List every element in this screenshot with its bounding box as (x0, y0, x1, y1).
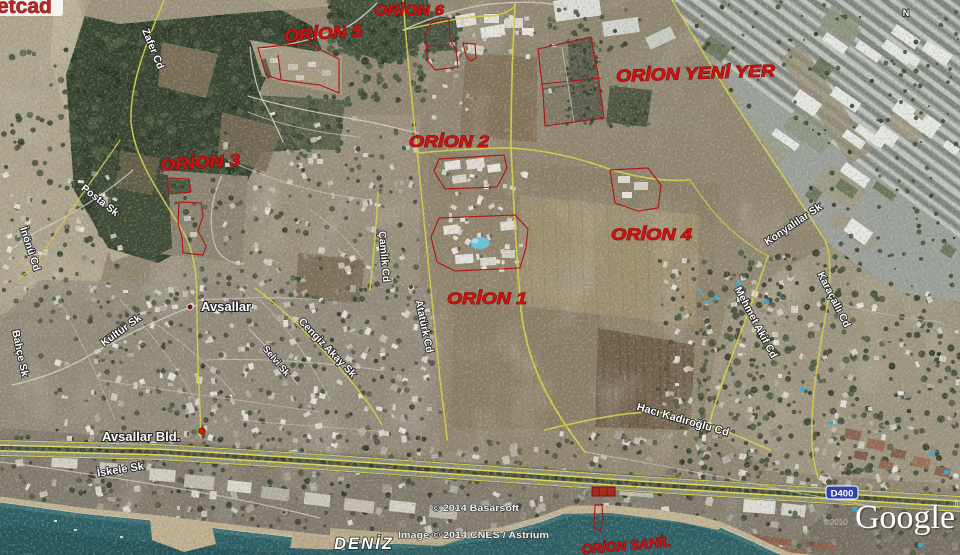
svg-text:© 2014 Basarsoft: © 2014 Basarsoft (432, 503, 520, 514)
svg-text:ORİON 1: ORİON 1 (447, 290, 527, 308)
svg-text:ORİON 2: ORİON 2 (409, 133, 489, 151)
svg-text:ORİON 6: ORİON 6 (374, 2, 445, 19)
svg-text:Google: Google (855, 499, 955, 536)
svg-text:Avsallar Bld.: Avsallar Bld. (102, 429, 180, 444)
svg-text:N: N (903, 8, 910, 18)
svg-text:D400: D400 (831, 489, 854, 500)
svg-text:etcad: etcad (0, 0, 52, 18)
svg-text:ORİON 4: ORİON 4 (611, 226, 692, 244)
svg-text:Avsallar: Avsallar (201, 299, 251, 314)
svg-text:®: ® (953, 499, 960, 509)
svg-text:Image © 2014 CNES / Astrium: Image © 2014 CNES / Astrium (398, 530, 549, 541)
svg-text:©2010: ©2010 (824, 518, 848, 527)
svg-text:DENİZ: DENİZ (334, 535, 394, 553)
